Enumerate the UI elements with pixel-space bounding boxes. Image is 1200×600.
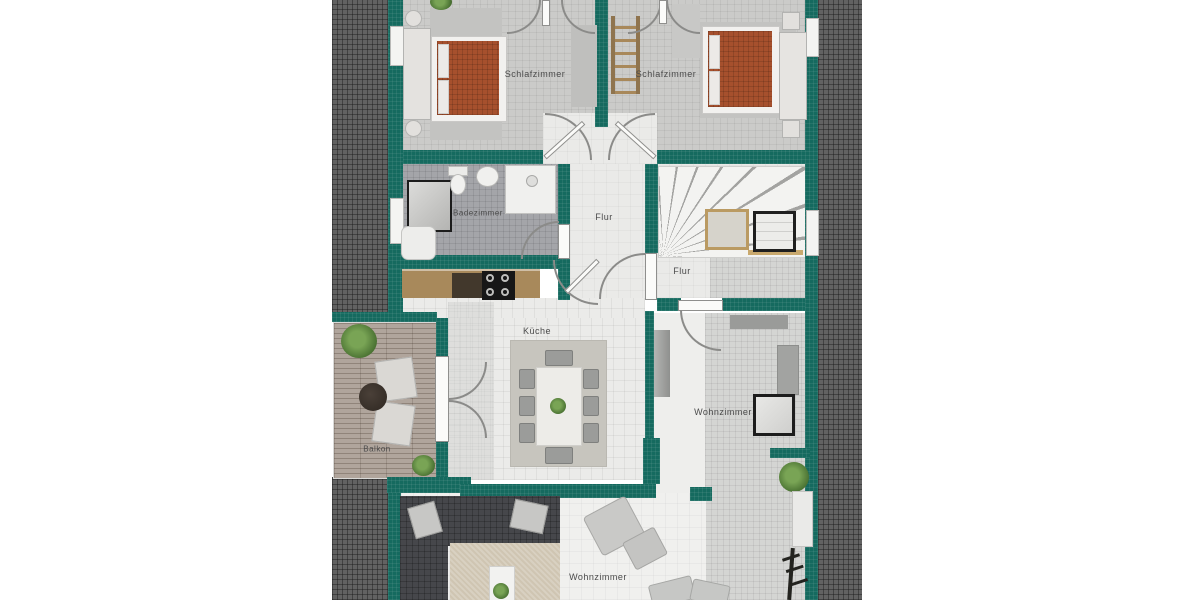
balcony-plant-small-icon — [412, 455, 435, 476]
balcony-door-frame — [435, 356, 449, 442]
burner-icon — [501, 274, 509, 282]
shower-drain — [526, 175, 538, 187]
stair-opening-frame — [753, 211, 796, 252]
room-label-bedroom-right: Schlafzimmer — [636, 69, 697, 79]
door-leaf-top-1 — [542, 0, 550, 26]
room-label-kitchen: Küche — [523, 326, 551, 336]
room-label-hallway-stairs: Flur — [673, 266, 691, 276]
fireplace — [753, 394, 795, 436]
dining-chair — [583, 396, 599, 416]
room-label-living-right: Wohnzimmer — [694, 407, 752, 417]
bedroom-left-side-table-bottom — [405, 120, 422, 137]
wall-hall-left-a — [558, 164, 570, 224]
balcony-table — [359, 383, 387, 411]
wall-bedroom-right-south — [657, 150, 805, 164]
living-right-rug — [730, 315, 788, 329]
wall-corridor-corner — [643, 438, 660, 484]
room-label-hallway: Flur — [595, 212, 613, 222]
balcony-plant-icon — [341, 324, 377, 358]
wall-balcony-door-bottom — [436, 436, 448, 480]
table-plant-icon — [550, 398, 566, 414]
window-stair-room — [806, 210, 819, 256]
bed-right-pillow-2 — [709, 71, 720, 105]
bedroom-right-bench — [779, 32, 807, 120]
window-bedroom-right — [806, 18, 819, 57]
burner-icon — [486, 288, 494, 296]
toilet-bowl — [450, 174, 466, 195]
bedroom-left-side-table-top — [405, 10, 422, 27]
living-room-plant-icon — [493, 583, 509, 599]
dining-chair — [519, 369, 535, 389]
dining-chair — [583, 423, 599, 443]
dining-chair — [583, 369, 599, 389]
kitchen-floor-top — [402, 298, 645, 320]
floor-plan: Schlafzimmer Schlafzimmer Badezimmer Flu… — [0, 0, 1200, 600]
door-leaf-top-2 — [659, 0, 667, 24]
wall-bedroom-left-south — [403, 150, 543, 164]
sink — [476, 166, 499, 187]
room-label-bedroom-left: Schlafzimmer — [505, 69, 566, 79]
dining-chair — [519, 423, 535, 443]
bed-left-pillow-2 — [438, 80, 449, 114]
sideboard — [654, 330, 670, 397]
kitchen-counter — [402, 269, 540, 298]
wall-terrace — [770, 448, 810, 458]
bathtub — [401, 226, 436, 260]
burner-icon — [486, 274, 494, 282]
window-bedroom-left — [390, 26, 404, 66]
room-label-bathroom: Badezimmer — [453, 209, 503, 218]
terrace-bench — [792, 491, 813, 547]
counter-board — [452, 273, 482, 298]
bed-right-pillow-1 — [709, 35, 720, 69]
roof-hatch-left-bottom — [332, 477, 388, 600]
dining-chair — [545, 447, 573, 464]
wall-corridor-left — [645, 311, 654, 440]
room-label-living-main: Wohnzimmer — [569, 572, 627, 582]
bedroom-left-sofa — [403, 28, 431, 120]
shower-tray — [505, 165, 556, 214]
bedroom-right-table-top — [782, 12, 800, 30]
room-label-balcony: Balkon — [363, 445, 390, 454]
radiator — [777, 345, 799, 395]
door-leaf-bathroom — [558, 224, 570, 259]
bed-left-pillow-1 — [438, 44, 449, 78]
wall-balcony-north — [332, 312, 437, 322]
stair-wood-frame — [705, 209, 749, 250]
roof-hatch-right — [818, 0, 862, 600]
dining-chair — [519, 396, 535, 416]
bedroom-right-table-bottom — [782, 120, 800, 138]
terrace-plant-icon — [779, 462, 809, 492]
burner-icon — [501, 288, 509, 296]
dining-chair — [545, 350, 573, 366]
roof-hatch-left-top — [332, 0, 389, 320]
door-leaf-hall-corridor — [645, 253, 657, 300]
wall-stair-south-right — [722, 298, 805, 311]
stove — [482, 271, 515, 300]
bedroom-left-side-rug — [571, 25, 597, 107]
wall-hall-right — [645, 164, 658, 253]
shower-enclosure — [407, 180, 452, 232]
wall-kitchen-south-a — [387, 477, 471, 493]
wall-post — [690, 487, 712, 501]
